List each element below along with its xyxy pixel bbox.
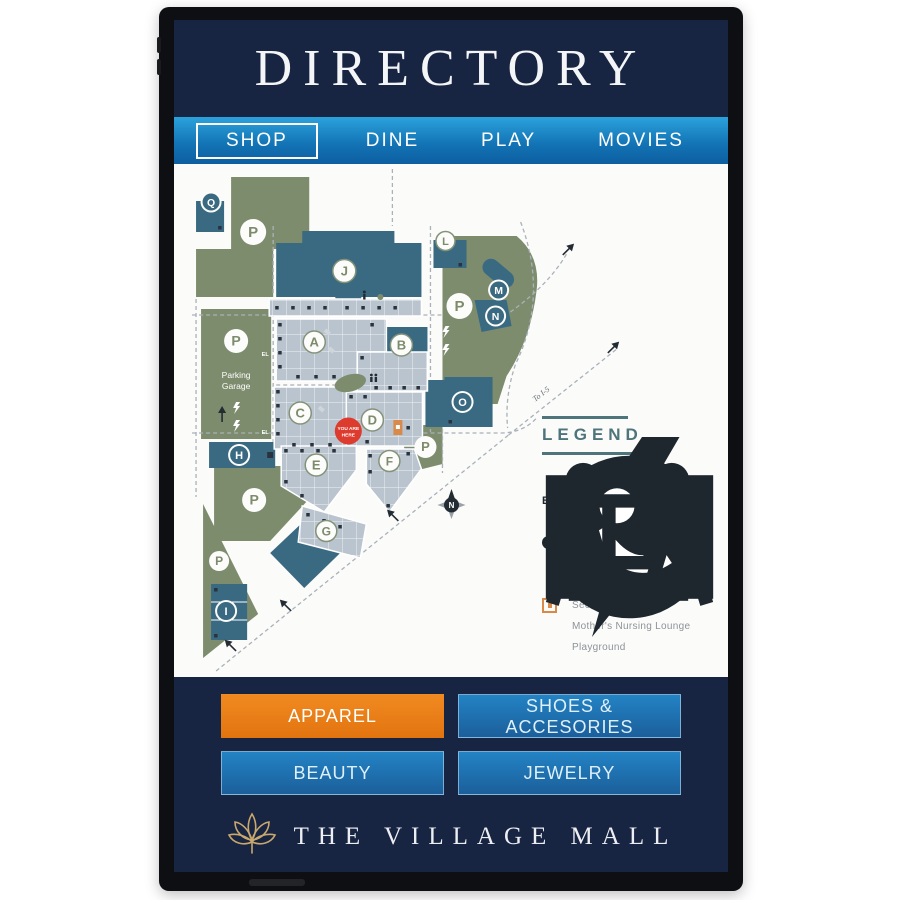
svg-text:P: P (455, 298, 465, 315)
lotus-logo-icon (225, 811, 279, 862)
category-beauty-button[interactable]: BEAUTY (221, 751, 444, 795)
garage-el-label: EL (262, 352, 270, 358)
tab-play[interactable]: PLAY (467, 124, 550, 158)
building-j: J (333, 260, 356, 283)
bottom-panel: APPAREL SHOES & ACCESORIES BEAUTY JEWELR… (174, 677, 728, 872)
header: DIRECTORY (174, 20, 728, 117)
svg-text:P: P (421, 439, 430, 454)
kiosk-frame: DIRECTORY SHOP DINE PLAY MOVIES (159, 7, 743, 891)
garage-el-label: EL (262, 430, 270, 436)
svg-text:J: J (341, 264, 348, 279)
tab-movies[interactable]: MOVIES (584, 124, 698, 158)
building-d: D (361, 409, 383, 431)
svg-text:B: B (397, 338, 406, 353)
svg-text:L: L (442, 236, 449, 248)
building-h: H (228, 444, 250, 466)
svg-text:E: E (312, 458, 321, 473)
person-map-icon (363, 291, 366, 300)
svg-text:P: P (249, 492, 258, 508)
svg-text:H: H (235, 450, 243, 462)
building-e: E (305, 454, 327, 476)
svg-text:M: M (494, 285, 503, 297)
svg-text:G: G (322, 525, 331, 539)
mall-name: THE VILLAGE MALL (294, 823, 678, 851)
svg-text:O: O (458, 397, 467, 409)
mall-map: Parking Garage EL EL P P P P P P (174, 164, 728, 677)
svg-text:Garage: Garage (222, 381, 251, 391)
svg-text:HERE: HERE (342, 433, 356, 439)
svg-text:Parking: Parking (222, 370, 251, 380)
svg-text:YOU ARE: YOU ARE (337, 426, 359, 432)
compass-rose: N (437, 489, 465, 519)
legend-item-playground: Playground (542, 637, 717, 658)
category-shoes-button[interactable]: SHOES & ACCESORIES (458, 694, 681, 738)
kiosk-photo: DIRECTORY SHOP DINE PLAY MOVIES (0, 0, 900, 900)
svg-text:N: N (492, 311, 500, 323)
svg-text:Q: Q (207, 197, 215, 209)
mall-brand: THE VILLAGE MALL (174, 811, 728, 862)
tab-dine[interactable]: DINE (352, 124, 433, 158)
kiosk-screen: DIRECTORY SHOP DINE PLAY MOVIES (174, 20, 728, 872)
building-g: G (316, 521, 337, 542)
kiosk-stand-slot (249, 879, 305, 886)
building-i: I (215, 600, 237, 622)
svg-text:I: I (225, 606, 228, 618)
building-a: A (303, 331, 325, 353)
building-q: Q (201, 192, 222, 213)
building-n: N (485, 306, 506, 327)
building-b: B (390, 334, 412, 356)
category-jewelry-button[interactable]: JEWELRY (458, 751, 681, 795)
category-tabs: SHOP DINE PLAY MOVIES (174, 117, 728, 164)
building-l: L (436, 232, 455, 251)
tab-shop[interactable]: SHOP (196, 123, 318, 159)
shop-category-buttons: APPAREL SHOES & ACCESORIES BEAUTY JEWELR… (221, 694, 681, 795)
svg-text:C: C (296, 406, 306, 421)
svg-text:N: N (449, 501, 455, 510)
svg-text:F: F (386, 455, 393, 469)
kiosk-volume-button (157, 59, 161, 75)
svg-text:D: D (368, 413, 377, 428)
to-i5-label: To I-5 (531, 385, 552, 404)
svg-text:P: P (248, 224, 258, 241)
svg-text:A: A (310, 335, 320, 350)
svg-text:P: P (215, 554, 223, 568)
category-apparel-button[interactable]: APPAREL (221, 694, 444, 738)
building-m: M (488, 280, 509, 301)
map-legend: LEGEND Entrance EL Elevator (542, 416, 717, 658)
you-are-here-marker: YOU ARE HERE (335, 418, 362, 445)
building-o: O (452, 391, 474, 413)
building-f: F (379, 451, 400, 472)
kiosk-power-button (157, 37, 161, 53)
svg-text:P: P (231, 333, 240, 349)
building-c: C (289, 402, 311, 424)
page-title: DIRECTORY (255, 39, 648, 98)
